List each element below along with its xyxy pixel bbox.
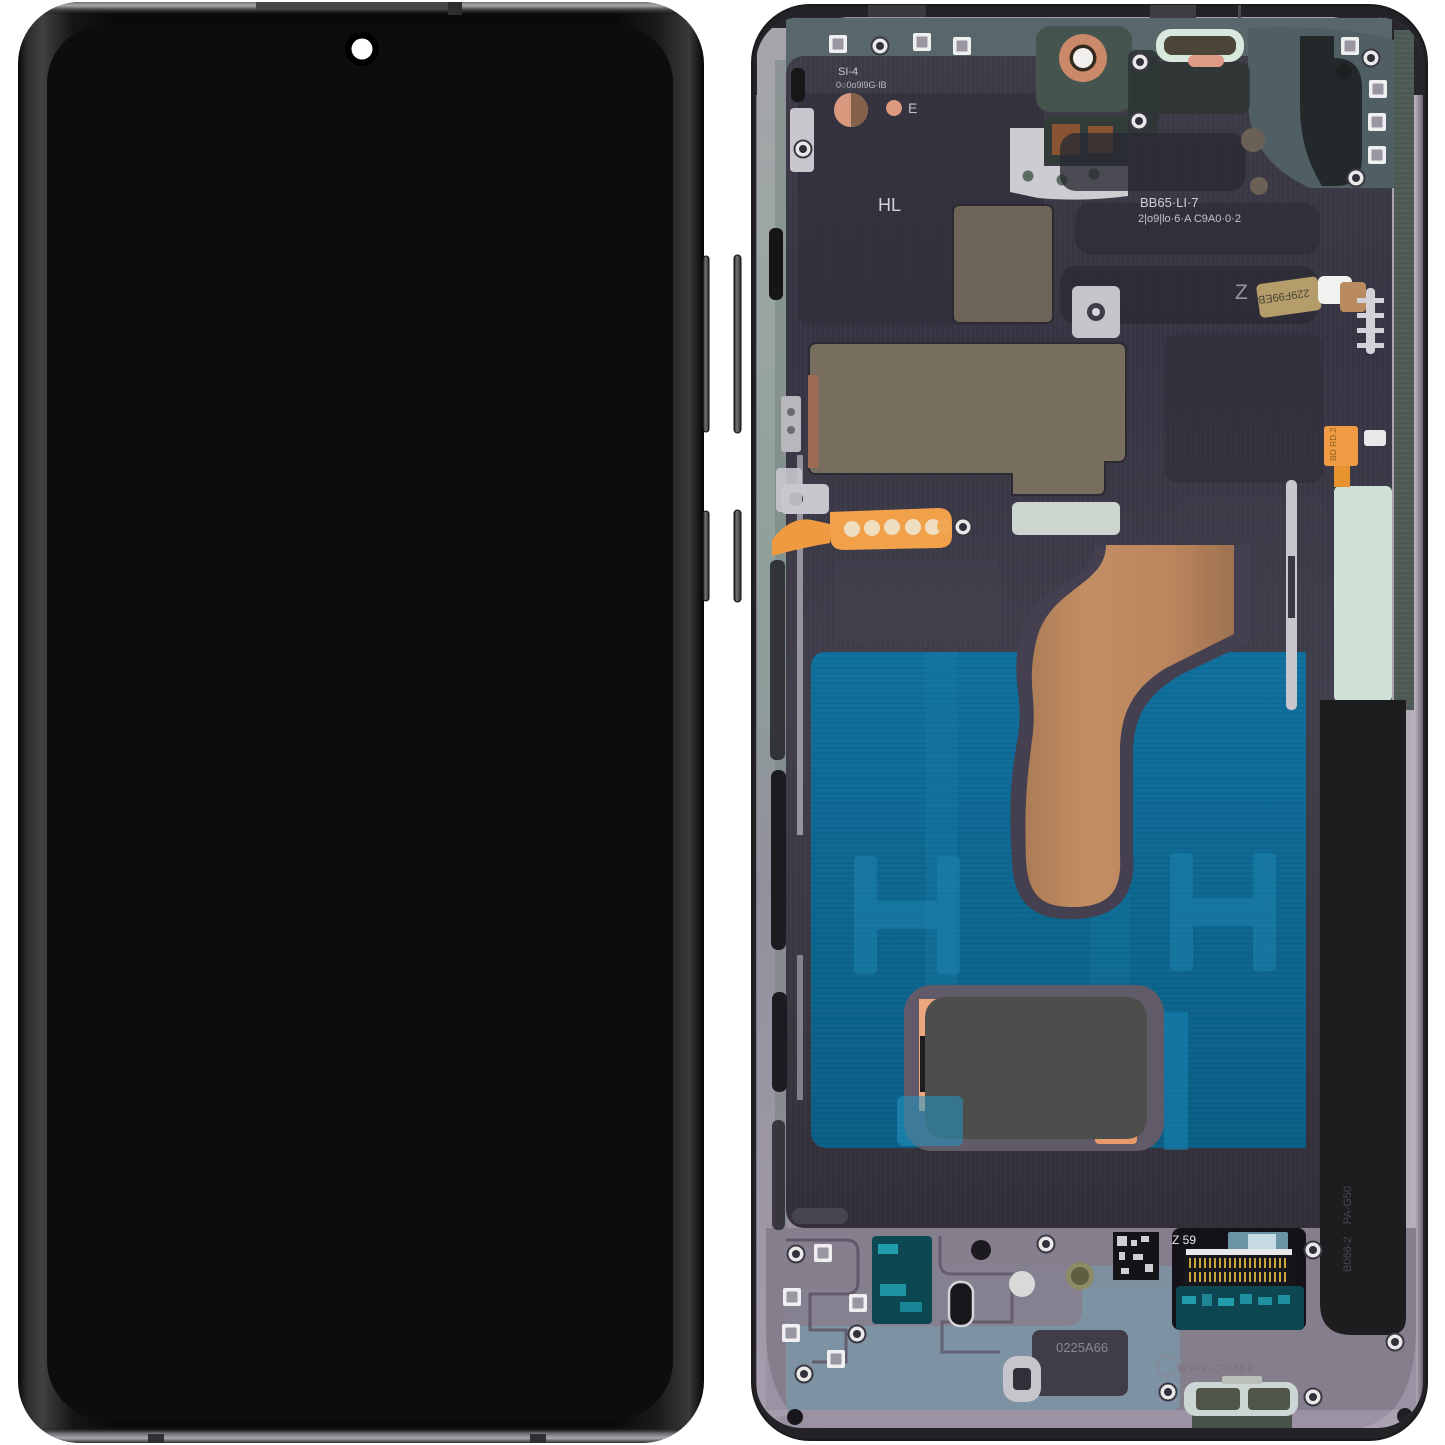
svg-text:0225A66: 0225A66: [1056, 1340, 1108, 1355]
svg-text:SI-4: SI-4: [838, 66, 858, 78]
svg-text:B066-2 PA-G50: B066-2 PA-G50: [1342, 1186, 1354, 1272]
svg-text:BB65·LI·7: BB65·LI·7: [1140, 195, 1199, 210]
svg-text:2|o9|lo·6·A C9A0·0·2: 2|o9|lo·6·A C9A0·0·2: [1138, 213, 1241, 225]
svg-text:HL: HL: [878, 195, 901, 215]
svg-text:E: E: [908, 100, 917, 116]
svg-text:Z 59: Z 59: [1172, 1233, 1196, 1247]
svg-text:Z: Z: [1235, 281, 1248, 304]
svg-text:0○0o9l9G·lB: 0○0o9l9G·lB: [836, 80, 886, 90]
svg-text:B*P·9··C·A6B2: B*P·9··C·A6B2: [1178, 1363, 1253, 1375]
svg-text:BD RD.2: BD RD.2: [1328, 427, 1338, 461]
